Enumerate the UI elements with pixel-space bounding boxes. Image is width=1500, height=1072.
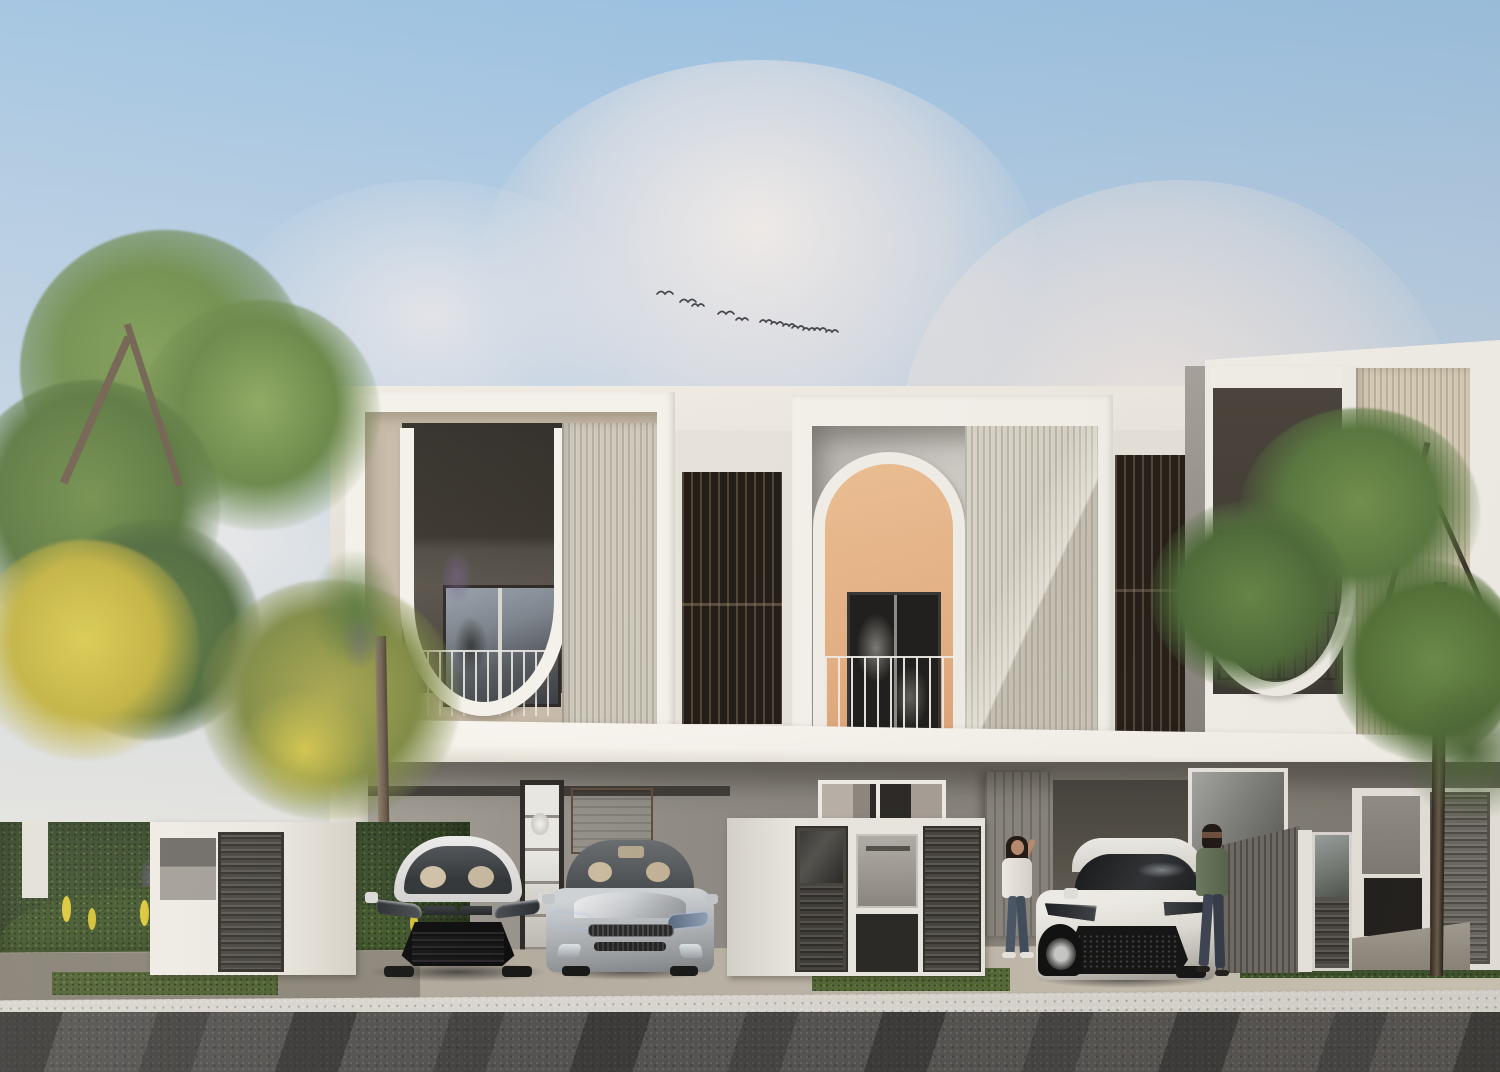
shoe	[1196, 966, 1210, 972]
slat-screen	[682, 472, 782, 724]
woman-standing	[1188, 824, 1238, 986]
jeans-leg	[1213, 894, 1226, 968]
volt-seat	[646, 862, 670, 882]
tee-shirt	[1002, 858, 1032, 898]
volt-grille-slot2	[594, 942, 666, 951]
townhouse-middle-frame	[792, 395, 1113, 750]
gate-door-louvers	[1315, 901, 1349, 965]
woman-waving	[994, 834, 1042, 974]
yellow-blossom-cluster	[240, 690, 370, 810]
sneaker	[1002, 952, 1016, 958]
road-tree-shadows	[0, 1012, 1500, 1072]
gate-louver-door	[795, 826, 848, 972]
gate-fence-middle	[727, 818, 985, 976]
gate-right-post	[1298, 830, 1312, 972]
sedan-grille	[398, 922, 518, 966]
hatch-alloy-wheel	[1046, 938, 1076, 970]
townhouse-middle-interior	[812, 426, 1098, 750]
fence-shadow-left	[727, 818, 793, 976]
hatch-grille-mesh	[1076, 934, 1178, 968]
fluted-panel	[562, 423, 657, 744]
sneaker	[1020, 952, 1034, 958]
face	[1011, 840, 1024, 855]
sedan-seat	[420, 866, 446, 888]
windshield-glint	[1136, 862, 1188, 878]
yellow-flower-spike	[62, 896, 71, 922]
arch-frame	[813, 452, 965, 750]
slat-rail	[682, 603, 782, 606]
volt-wheel	[670, 966, 698, 976]
sedan-wheel	[502, 966, 532, 977]
utility-panel	[160, 838, 216, 900]
gate-right-door	[1312, 832, 1352, 971]
sedan-mirror	[365, 892, 378, 903]
utility-louver-door	[218, 832, 284, 972]
slat-screen-left-bay	[675, 430, 792, 742]
headband	[1202, 832, 1222, 838]
mailbox	[856, 834, 918, 908]
volt-fog	[557, 944, 582, 958]
right-dark-window	[1364, 878, 1422, 936]
olive-top	[1196, 848, 1228, 896]
jeans-leg	[1199, 894, 1214, 967]
cabinet-ornament	[531, 813, 549, 835]
fluted-panel	[965, 426, 1098, 750]
mailbox-slot	[866, 846, 910, 851]
gate-door-glass	[800, 831, 843, 883]
volt-mirror	[705, 894, 718, 904]
hatch-grille	[1066, 926, 1188, 974]
hatch-mirror	[1064, 888, 1078, 899]
left-overhang-leaves	[310, 548, 400, 668]
volt-seat	[588, 862, 612, 882]
sun-streak	[965, 426, 1098, 750]
yellow-flower-spike	[140, 900, 149, 926]
hatch-wheel-arch	[1038, 924, 1082, 976]
townhouse-rendering	[0, 0, 1500, 1072]
grass-strip	[52, 972, 278, 995]
shoe	[1215, 970, 1229, 976]
gate-louver-panel	[923, 826, 981, 972]
sedan-seat	[468, 866, 494, 888]
car-silver-hatchback	[546, 840, 714, 978]
asphalt-road	[0, 1012, 1500, 1072]
sedan-grille-mesh	[412, 932, 504, 962]
volt-roof-item	[618, 846, 644, 858]
volt-fog	[679, 944, 704, 958]
utility-enclosure	[150, 822, 356, 975]
distant-gate-post	[22, 820, 48, 898]
fence-opening	[856, 914, 918, 972]
bird-flock-icon	[640, 280, 860, 340]
volt-wheel	[562, 966, 590, 976]
yellow-flower-spike	[88, 908, 96, 930]
car-white-sedan	[368, 834, 548, 980]
jeans-leg	[1016, 896, 1029, 954]
right-panel-gray	[1362, 796, 1420, 874]
right-tree-canopy	[1150, 500, 1350, 690]
purple-flowers	[440, 548, 474, 604]
volt-mirror	[542, 894, 555, 904]
volt-grille-slot	[588, 924, 674, 937]
gate-door-louvers	[800, 886, 843, 968]
gate-door-glass	[1315, 835, 1349, 897]
volt-hood-crease	[574, 892, 686, 918]
sedan-wheel	[384, 966, 414, 977]
